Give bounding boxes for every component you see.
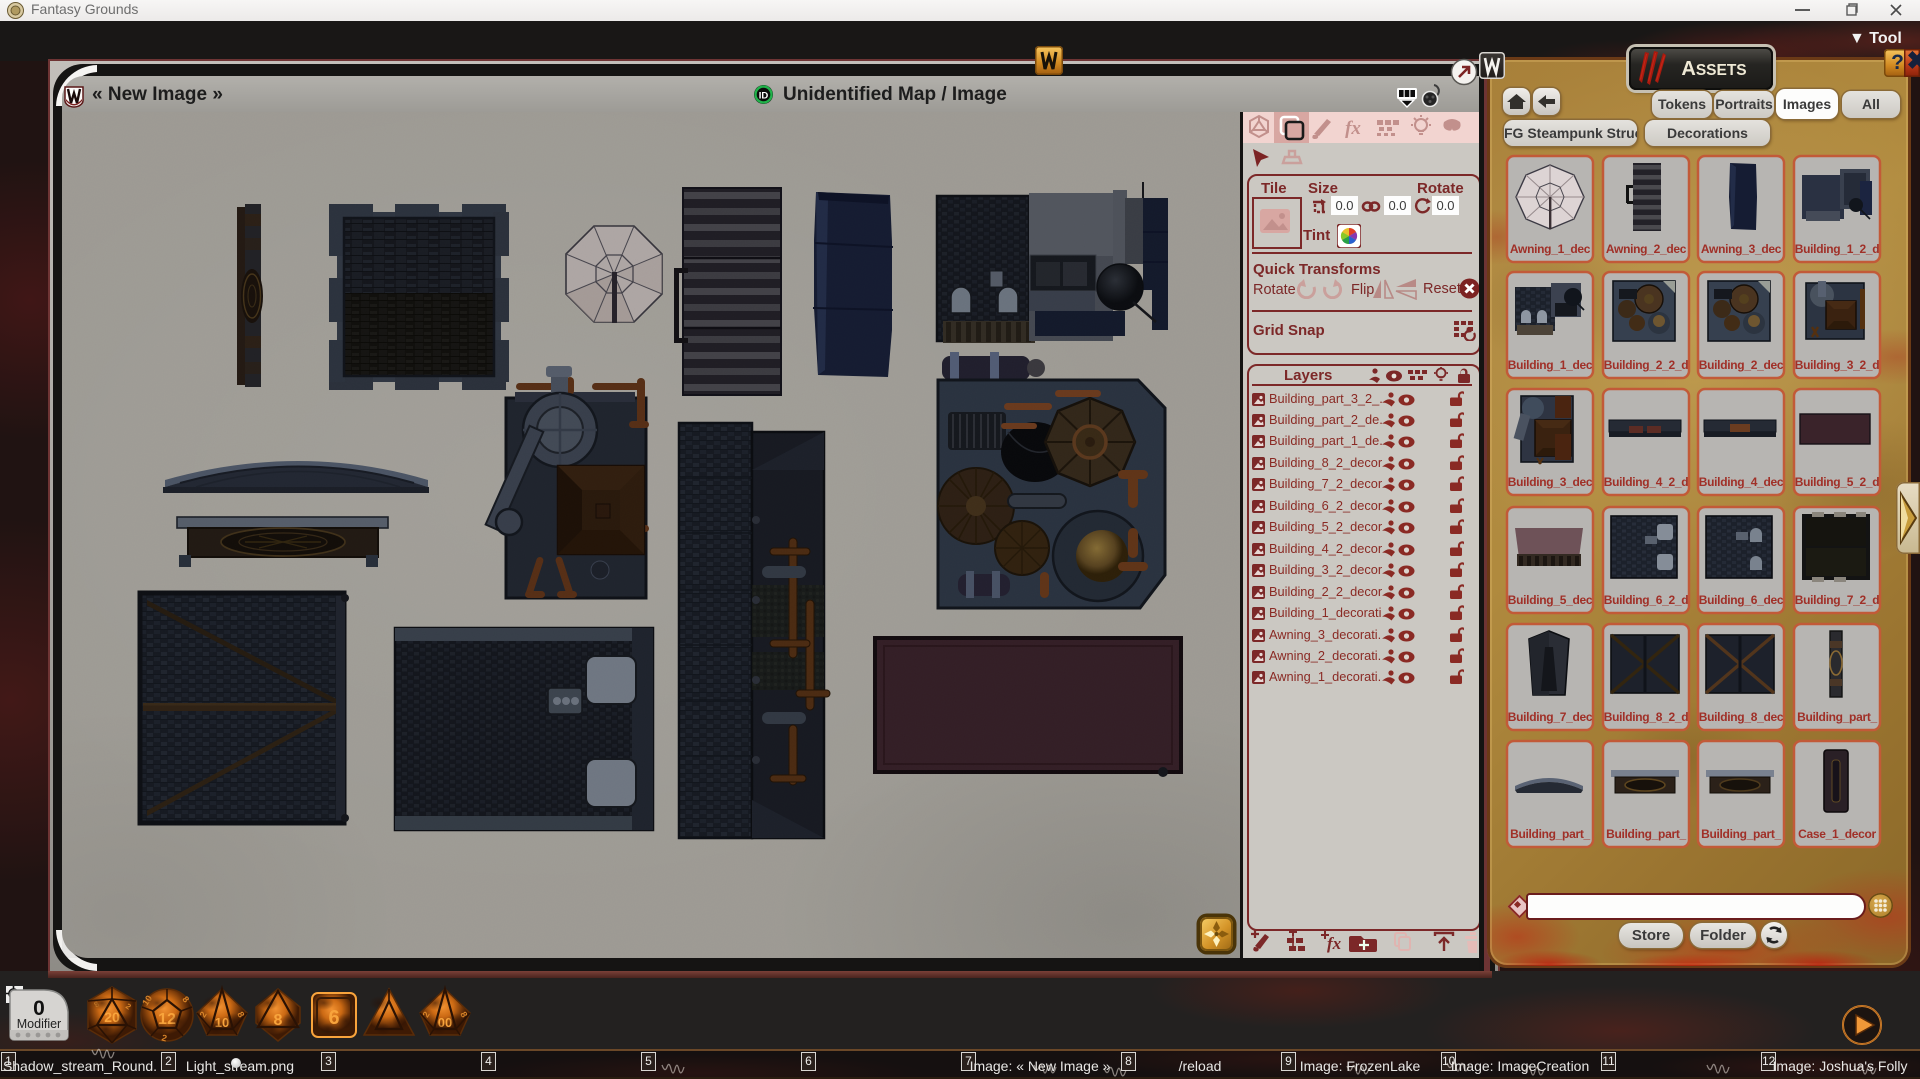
- svg-text:Building_6_dec: Building_6_dec: [1699, 593, 1784, 607]
- svg-text:Building_8_dec: Building_8_dec: [1699, 710, 1784, 724]
- svg-text:Building_1_dec: Building_1_dec: [1508, 358, 1593, 372]
- svg-text:Building_8_2_d: Building_8_2_d: [1604, 710, 1689, 724]
- svg-text:Building_5_2_d: Building_5_2_d: [1795, 475, 1880, 489]
- svg-text:Building_2_2_d: Building_2_2_d: [1604, 358, 1689, 372]
- svg-text:Building_1_2_d: Building_1_2_d: [1795, 242, 1880, 256]
- svg-text:Building_part_: Building_part_: [1701, 827, 1781, 841]
- svg-text:fx: fx: [1327, 934, 1342, 953]
- svg-text:Modifier: Modifier: [17, 1017, 61, 1031]
- svg-text:Case_1_decor: Case_1_decor: [1798, 827, 1876, 841]
- svg-text:Building_5_dec: Building_5_dec: [1508, 593, 1593, 607]
- svg-text:Awning_2_dec: Awning_2_dec: [1606, 242, 1687, 256]
- svg-text:Building_3_dec: Building_3_dec: [1508, 475, 1593, 489]
- svg-text:Building_7_dec: Building_7_dec: [1508, 710, 1593, 724]
- svg-text:Building_4_2_d: Building_4_2_d: [1604, 475, 1689, 489]
- svg-text:Building_4_dec: Building_4_dec: [1699, 475, 1784, 489]
- svg-text:fx: fx: [1345, 118, 1361, 139]
- svg-text:ID: ID: [759, 91, 769, 102]
- svg-text:Building_3_2_d: Building_3_2_d: [1795, 358, 1880, 372]
- svg-text:Building_2_dec: Building_2_dec: [1699, 358, 1784, 372]
- svg-text:Awning_3_dec: Awning_3_dec: [1701, 242, 1782, 256]
- svg-text:Awning_1_dec: Awning_1_dec: [1510, 242, 1591, 256]
- svg-text:Building_7_2_d: Building_7_2_d: [1795, 593, 1880, 607]
- svg-text:Building_part_: Building_part_: [1510, 827, 1590, 841]
- svg-text:Building_part_: Building_part_: [1797, 710, 1877, 724]
- svg-text:Building_6_2_d: Building_6_2_d: [1604, 593, 1689, 607]
- svg-text:Building_part_: Building_part_: [1606, 827, 1686, 841]
